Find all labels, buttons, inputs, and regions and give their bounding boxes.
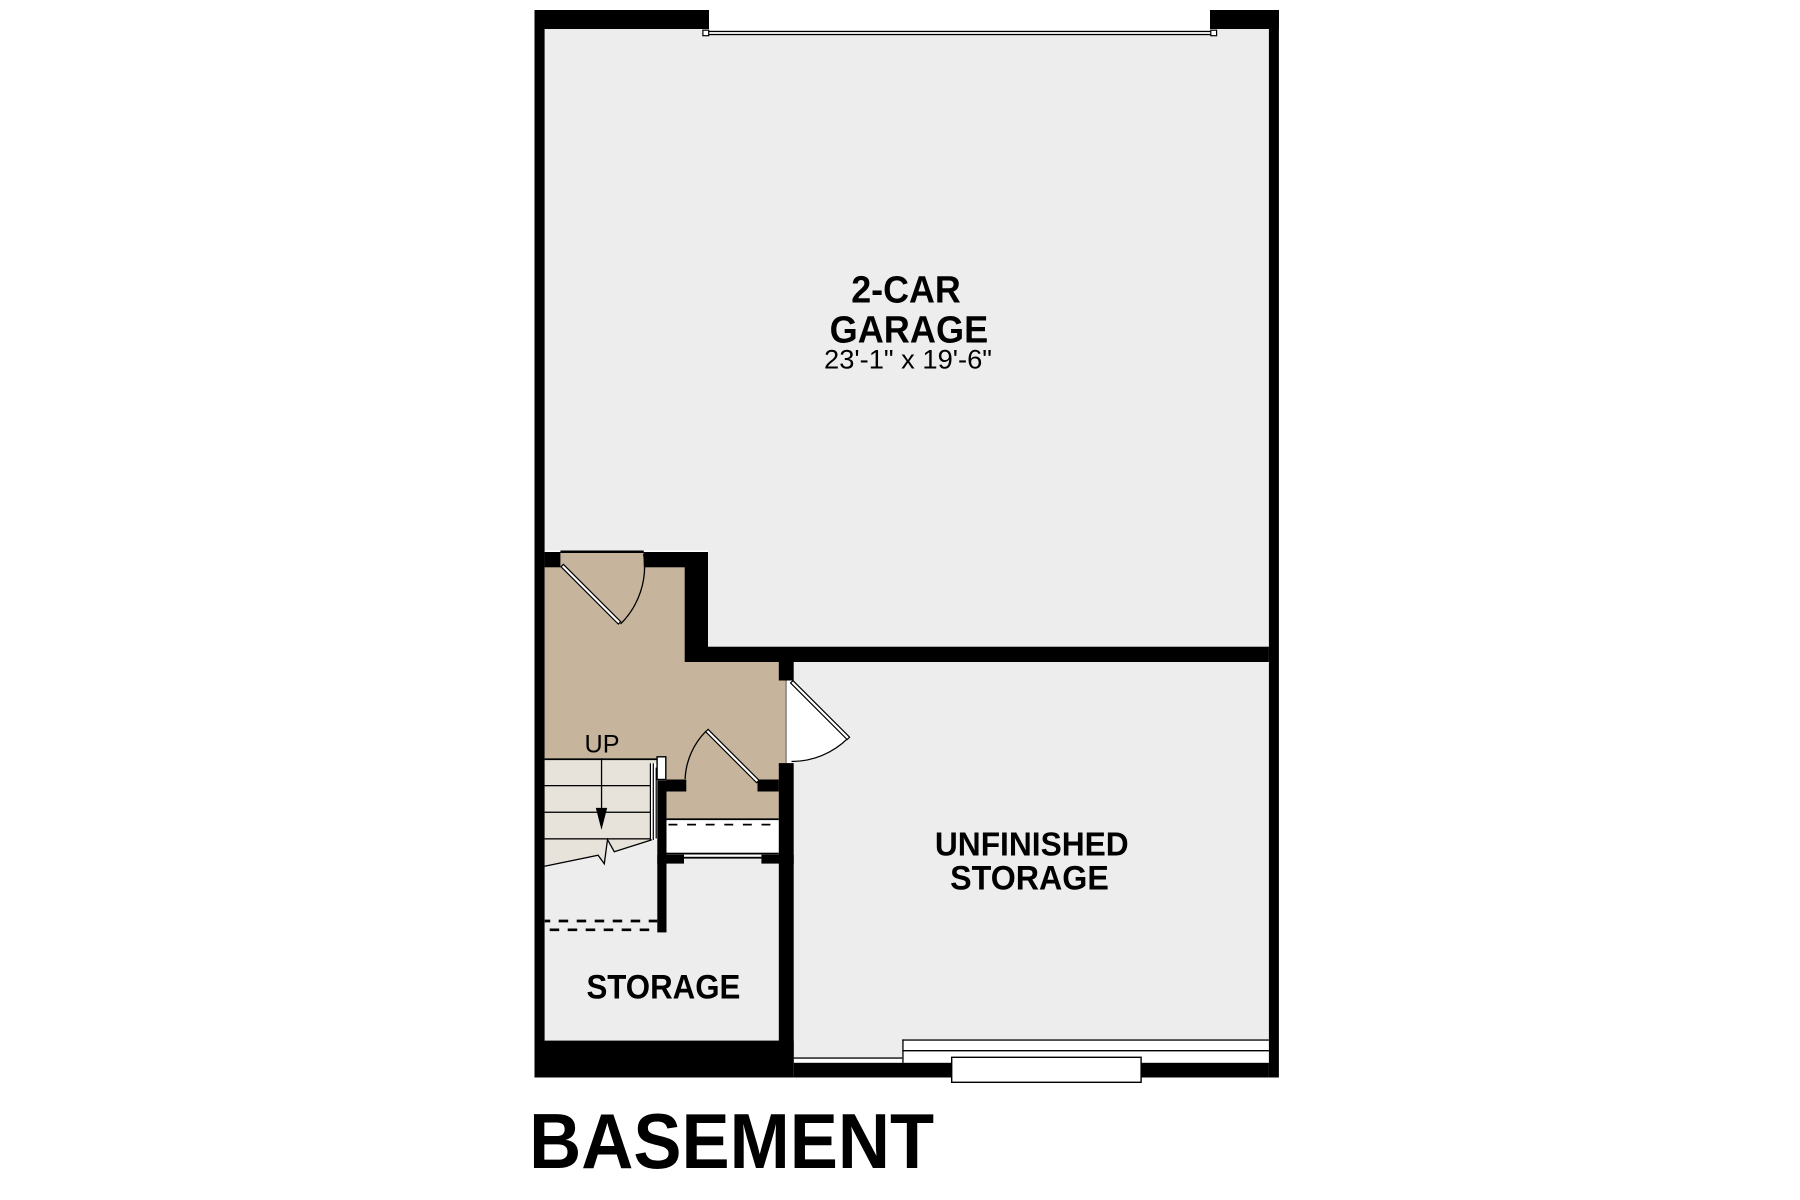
svg-text:23'-1" x 19'-6": 23'-1" x 19'-6" — [824, 345, 992, 375]
svg-text:UNFINISHED: UNFINISHED — [935, 827, 1129, 864]
svg-text:UP: UP — [585, 730, 620, 758]
svg-text:BASEMENT: BASEMENT — [529, 1099, 934, 1185]
svg-text:STORAGE: STORAGE — [586, 968, 740, 1006]
svg-text:STORAGE: STORAGE — [950, 859, 1109, 897]
svg-text:2-CAR: 2-CAR — [851, 268, 961, 311]
